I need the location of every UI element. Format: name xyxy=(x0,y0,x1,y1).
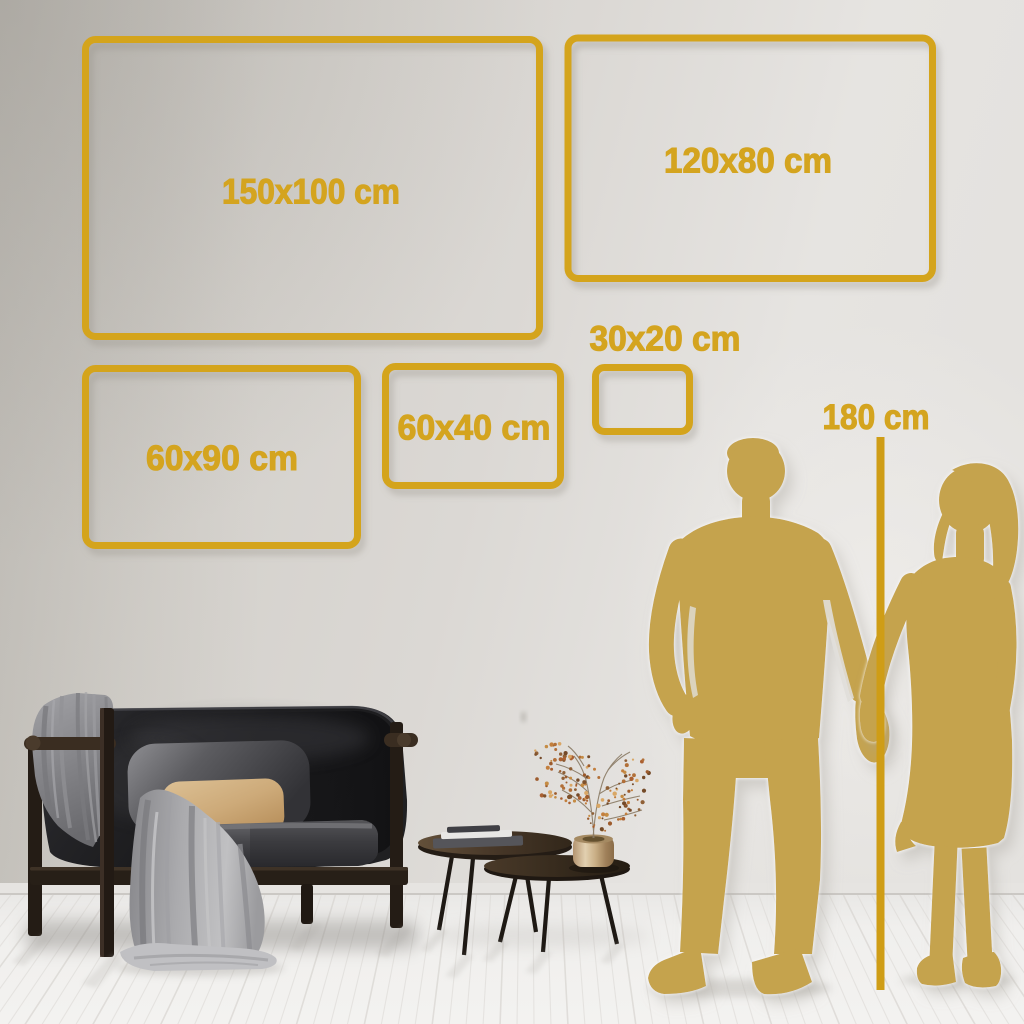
svg-text:30x20 cm: 30x20 cm xyxy=(590,320,741,359)
svg-text:60x40 cm: 60x40 cm xyxy=(398,409,551,448)
svg-text:180 cm: 180 cm xyxy=(823,398,930,437)
svg-text:120x80 cm: 120x80 cm xyxy=(664,142,832,181)
svg-text:150x100 cm: 150x100 cm xyxy=(222,173,400,212)
svg-text:60x90 cm: 60x90 cm xyxy=(146,439,298,478)
